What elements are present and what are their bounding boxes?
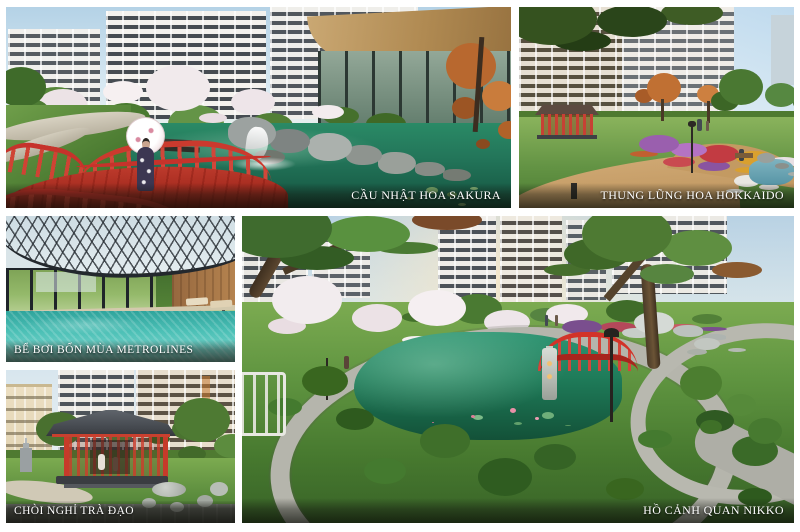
white-pergola xyxy=(242,372,286,436)
lamp-post xyxy=(688,121,696,127)
stream xyxy=(749,159,794,185)
stone-table xyxy=(152,482,186,497)
caption-teahouse: CHÒI NGHỈ TRÀ ĐẠO xyxy=(6,501,235,524)
lamp-post xyxy=(610,334,613,422)
photo-tile-nikko-lake: HỒ CẢNH QUAN NIKKO xyxy=(242,216,794,523)
nikko-artwork xyxy=(242,216,794,523)
stone-pagoda xyxy=(20,448,32,472)
hokkaido-artwork xyxy=(519,7,794,208)
apartment-tower xyxy=(622,7,734,119)
water-reflection xyxy=(26,316,146,334)
red-pavilion xyxy=(541,114,593,136)
photo-tile-four-season-pool: BỂ BƠI BỐN MÙA METROLINES xyxy=(6,216,235,362)
orange-tree xyxy=(647,73,681,103)
pavilion-step xyxy=(64,484,160,488)
pavilion-base xyxy=(537,135,597,139)
stone-table xyxy=(694,338,720,350)
pavilion-interior xyxy=(90,440,130,474)
lamp-post xyxy=(691,125,693,173)
pavilion-eave xyxy=(52,434,170,437)
caption-pool: BỂ BƠI BỐN MÙA METROLINES xyxy=(6,340,235,363)
blossom-trees xyxy=(272,276,342,324)
apartment-tower xyxy=(771,15,794,85)
stone-lantern xyxy=(542,348,557,400)
pavilion-platform xyxy=(56,476,168,484)
lily-pads xyxy=(542,412,554,419)
green-trees xyxy=(174,398,230,442)
caption-nikko: HỒ CẢNH QUAN NIKKO xyxy=(242,498,794,523)
bench xyxy=(735,153,753,158)
photo-collage: CẦU NHẬT HOA SAKURA xyxy=(0,0,800,532)
green-trees xyxy=(719,69,763,105)
tree-trunk xyxy=(661,99,664,121)
flower-beds xyxy=(639,135,679,153)
caption-hokkaido: THUNG LŨNG HOA HOKKAIDO xyxy=(519,183,794,208)
photo-tile-hokkaido-valley: THUNG LŨNG HOA HOKKAIDO xyxy=(519,7,794,208)
people xyxy=(697,119,702,131)
lamp-post xyxy=(604,328,619,337)
sakura-artwork xyxy=(6,7,511,208)
photo-tile-sakura-bridge: CẦU NHẬT HOA SAKURA xyxy=(6,7,511,208)
caption-sakura: CẦU NHẬT HOA SAKURA xyxy=(6,183,511,208)
lotus-flowers xyxy=(510,408,516,413)
autumn-tree xyxy=(446,43,496,89)
people xyxy=(98,454,105,470)
rocks xyxy=(757,153,775,163)
apartment-tower xyxy=(500,216,562,312)
shrubs xyxy=(302,366,348,396)
blossom-trees xyxy=(146,65,210,111)
people xyxy=(344,356,349,369)
green-trees xyxy=(452,294,502,324)
photo-tile-tea-pavilion: CHÒI NGHỈ TRÀ ĐẠO xyxy=(6,370,235,523)
topiary-bushes xyxy=(680,366,722,400)
